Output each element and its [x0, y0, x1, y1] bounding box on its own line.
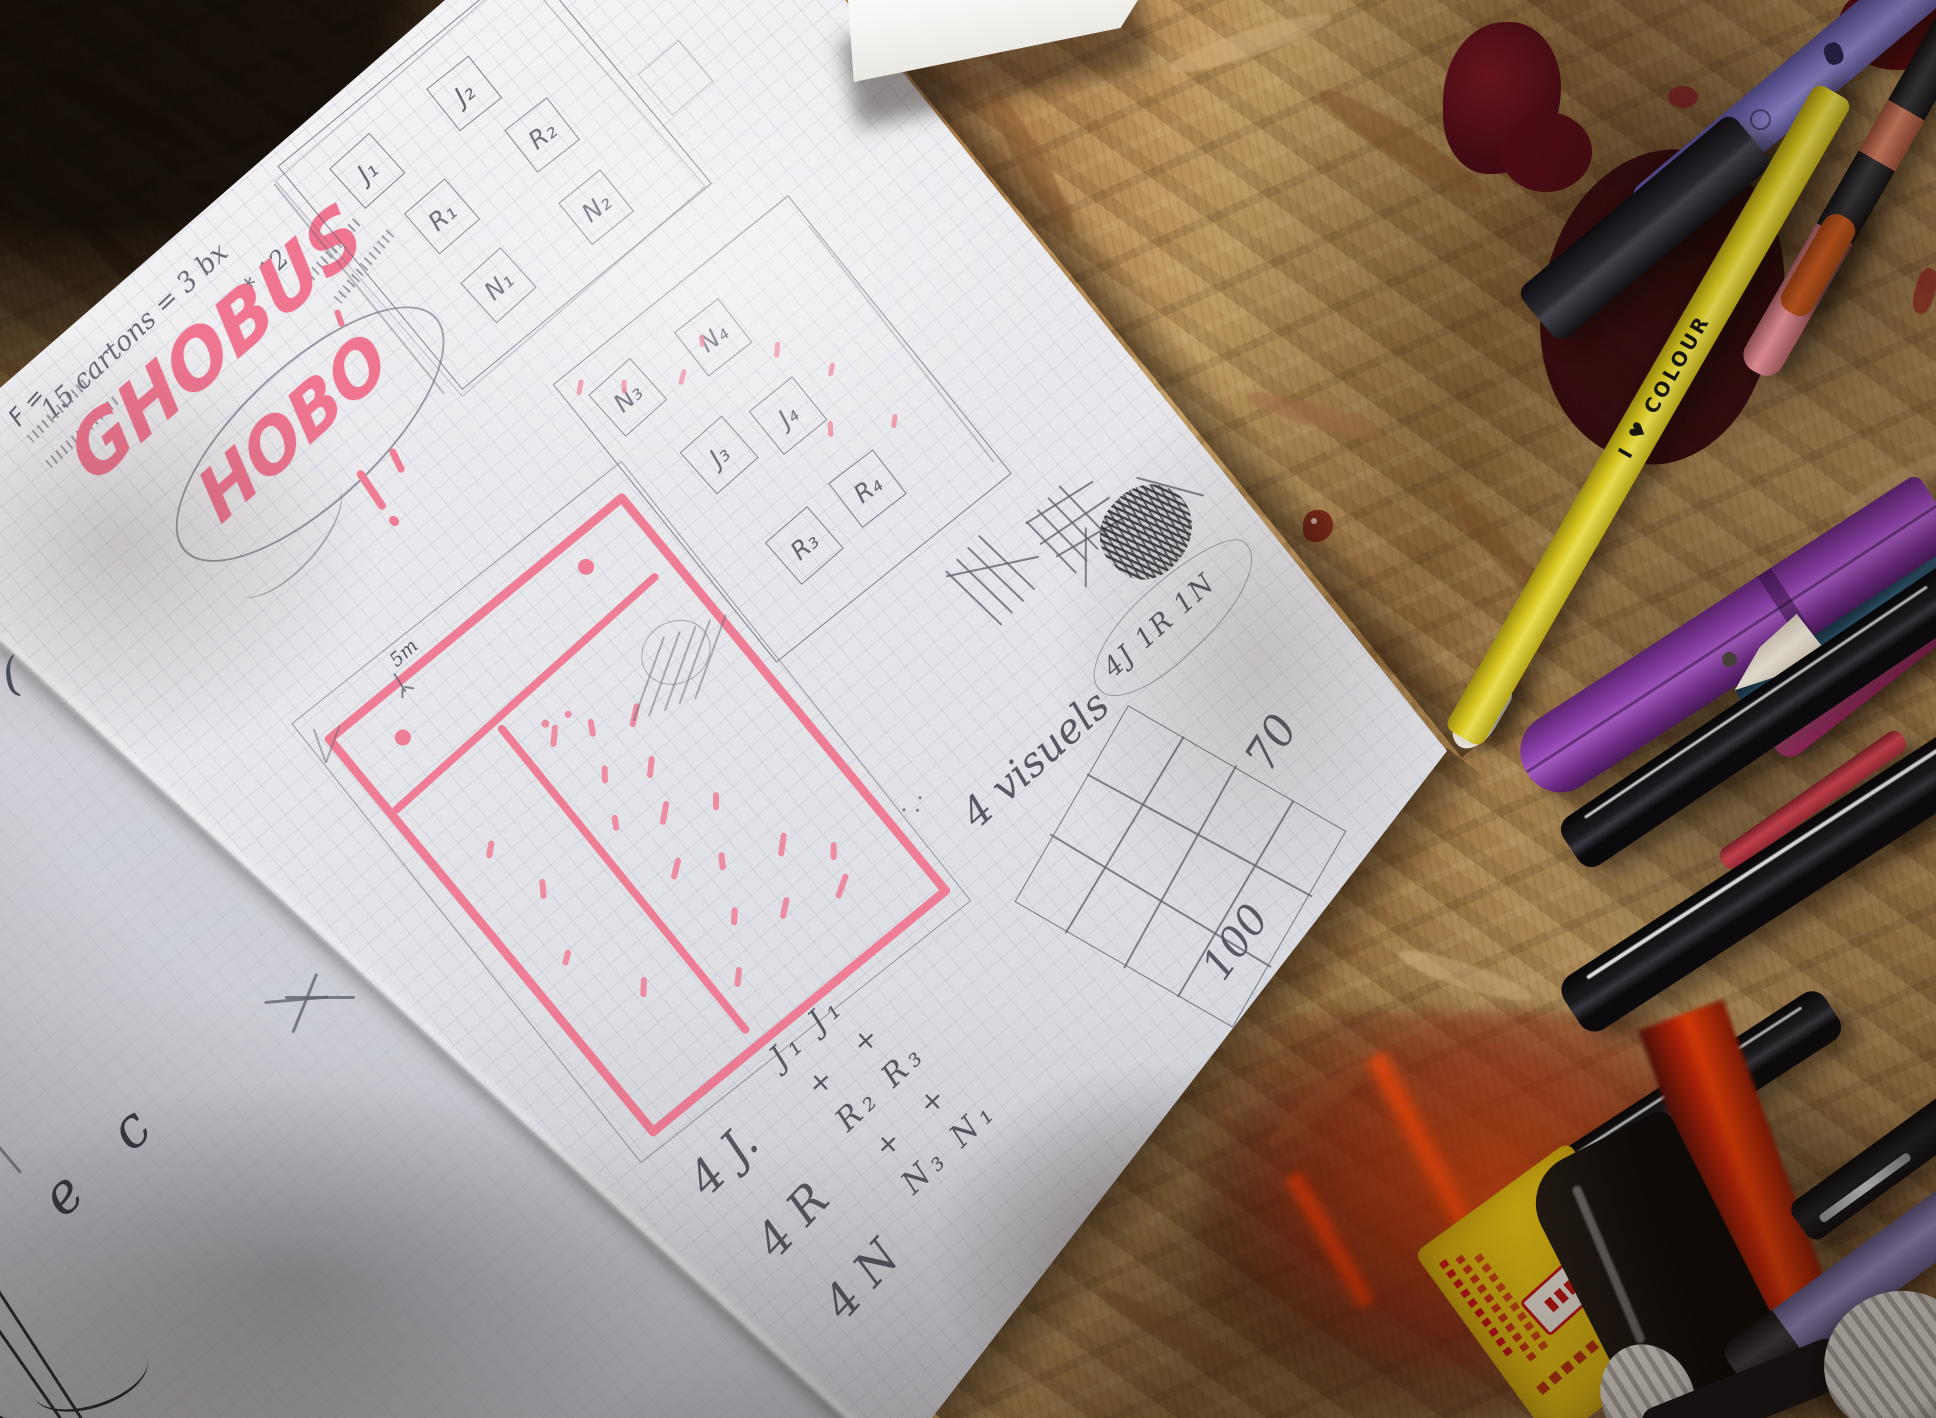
slot-label: J₂: [448, 77, 480, 111]
graphite-tip: [1722, 652, 1737, 667]
stray-pencil-stroke: [285, 996, 355, 999]
slot-label: N₃: [607, 377, 648, 418]
slot-label: R₁: [422, 196, 462, 236]
photo-scene: ( e c F = 15 cartons = 3 bx * 12 GHOBUS …: [0, 0, 1936, 1418]
drip-highlight: [1311, 518, 1317, 524]
tally-cross: [946, 556, 1039, 578]
slot-label: N₁: [478, 265, 519, 306]
pink-dash: [601, 765, 608, 783]
ring-mark: [1746, 105, 1776, 135]
tally-stroke: [967, 546, 1025, 602]
mini-grid-vline: [1087, 773, 1313, 897]
arrow-head: [401, 688, 403, 698]
hand-logo: [1821, 40, 1845, 67]
pink-speck: [699, 335, 705, 347]
slot-label: N₂: [576, 187, 617, 228]
slot-label: J₄: [772, 399, 804, 432]
slot-label: R₂: [522, 115, 561, 155]
pink-dash: [731, 907, 738, 925]
slot-label: R₃: [785, 526, 825, 566]
slot-label: J₃: [703, 438, 735, 471]
pink-dash: [640, 977, 647, 997]
paint-stain: [1668, 86, 1698, 108]
scribble-stray: [1085, 527, 1087, 587]
pink-dash: [831, 842, 837, 860]
pink-speck: [828, 421, 834, 437]
slot-label: J₁: [351, 154, 383, 187]
paint-stain: [1500, 112, 1592, 192]
pink-dash: [713, 792, 719, 810]
slot-label: R₄: [848, 469, 887, 509]
pink-speck: [622, 380, 627, 394]
